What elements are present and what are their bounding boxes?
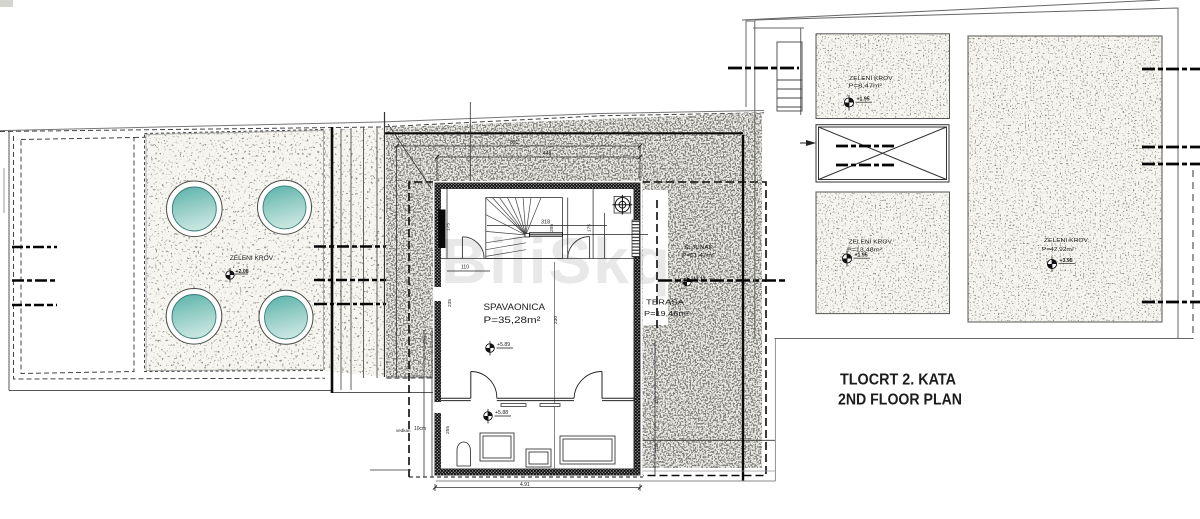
svg-text:P=42,92m²: P=42,92m² <box>1042 247 1074 253</box>
svg-text:+1.95: +1.95 <box>857 96 870 102</box>
svg-text:118: 118 <box>654 444 660 452</box>
svg-text:ZELENI KROV: ZELENI KROV <box>1044 238 1088 244</box>
svg-text:+5.89: +5.89 <box>497 342 510 348</box>
svg-text:205: 205 <box>549 224 555 232</box>
svg-text:P=61,47m²: P=61,47m² <box>682 253 714 259</box>
svg-text:P=8,47m²: P=8,47m² <box>849 84 883 90</box>
svg-text:2ND FLOOR PLAN: 2ND FLOOR PLAN <box>838 391 962 408</box>
svg-text:ZELENI KROV: ZELENI KROV <box>849 240 893 246</box>
svg-text:P=35,28m²: P=35,28m² <box>484 315 541 325</box>
svg-text:235: 235 <box>447 299 453 307</box>
svg-text:318: 318 <box>541 220 550 226</box>
svg-text:175: 175 <box>446 223 452 231</box>
svg-text:TERASA: TERASA <box>646 300 684 307</box>
svg-text:110: 110 <box>461 265 469 271</box>
svg-text:446: 446 <box>543 151 552 157</box>
svg-text:851: 851 <box>510 140 519 146</box>
svg-text:+1.95: +1.95 <box>855 252 868 258</box>
svg-text:230: 230 <box>553 316 559 324</box>
svg-text:255: 255 <box>445 426 451 434</box>
svg-text:ZELENI KROV: ZELENI KROV <box>230 255 274 262</box>
svg-text:275: 275 <box>423 336 429 344</box>
svg-text:175: 175 <box>587 224 593 232</box>
svg-text:SPAVAONICA: SPAVAONICA <box>484 302 546 312</box>
svg-text:TLOCRT 2. KATA: TLOCRT 2. KATA <box>840 372 956 389</box>
svg-text:10cm: 10cm <box>414 426 426 432</box>
svg-text:ZELENI KROV: ZELENI KROV <box>849 76 893 82</box>
svg-text:vedkan: vedkan <box>396 428 411 433</box>
svg-text:P=19,46m²: P=19,46m² <box>644 311 690 318</box>
svg-text:+5.88: +5.88 <box>495 410 508 416</box>
svg-text:4.91: 4.91 <box>520 482 530 488</box>
svg-text:115: 115 <box>654 396 660 404</box>
svg-text:ŠLJUNAK: ŠLJUNAK <box>684 244 713 251</box>
svg-text:+3.95: +3.95 <box>1060 258 1073 264</box>
